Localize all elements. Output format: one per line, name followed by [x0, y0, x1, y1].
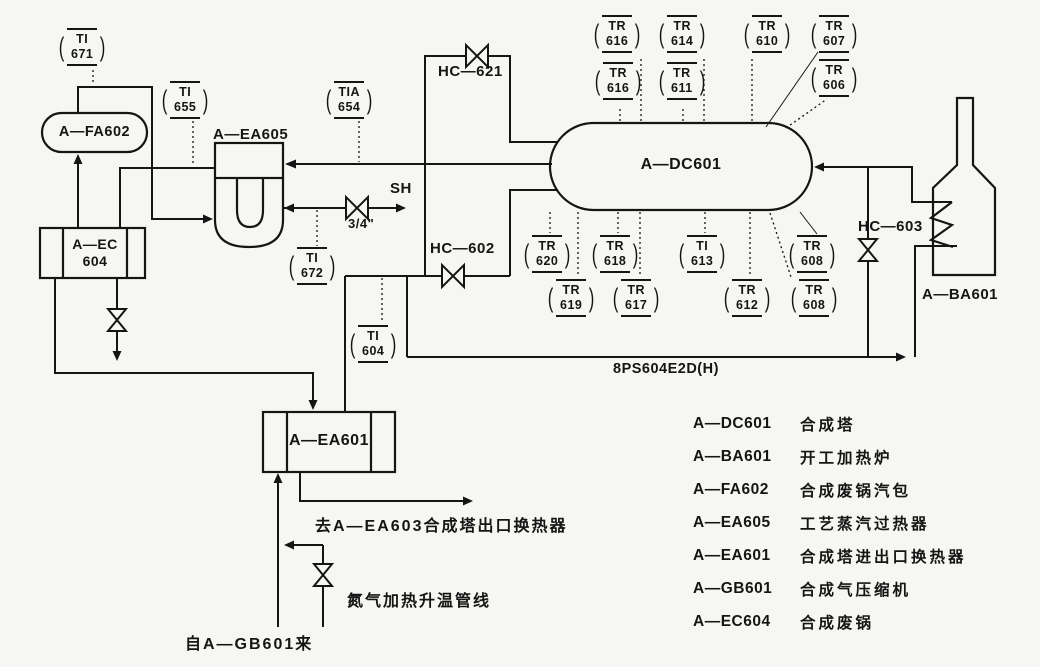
tag-number: 655	[174, 100, 196, 115]
tag-type: TR	[627, 283, 645, 298]
valve-hc603	[859, 239, 877, 261]
arrow-up-to-fa602	[74, 154, 83, 164]
instrument-tag-tr616a: TR616	[592, 15, 642, 53]
pfd-synthesis-unit: TI671 TI655 TIA654 TI672 TI604 TR616 TR6…	[0, 0, 1040, 667]
tag-type: TR	[609, 66, 627, 81]
tag-number: 611	[671, 81, 693, 96]
legend-desc: 合成气压缩机	[800, 578, 911, 600]
arrow-n2-in	[284, 541, 294, 550]
tag-number: 610	[756, 34, 778, 49]
tag-number: 616	[607, 81, 629, 96]
tag-type: TI	[76, 32, 88, 47]
label-dc601: A—DC601	[550, 156, 812, 174]
tag-type: TR	[758, 19, 776, 34]
tag-number: 607	[823, 34, 845, 49]
tag-type: TR	[606, 239, 624, 254]
arrow-drain-down	[113, 351, 122, 361]
label-sh: SH	[390, 180, 412, 197]
note-n2-heating-line: 氮气加热升温管线	[347, 587, 491, 611]
legend-code: A—GB601	[693, 580, 800, 598]
label-valve-hc603: HC—603	[858, 218, 923, 235]
tag-type: TR	[825, 19, 843, 34]
legend-desc: 工艺蒸汽过热器	[800, 512, 930, 534]
arrow-into-dc601-right	[814, 163, 824, 172]
legend-row: A—DC601合成塔	[693, 407, 967, 440]
instrument-tag-tr607: TR607	[809, 15, 859, 53]
instrument-tag-tr606: TR606	[809, 59, 859, 97]
label-ea601: A—EA601	[263, 432, 395, 450]
legend-code: A—DC601	[693, 415, 800, 433]
valve-n2-line	[314, 564, 332, 586]
tag-type: TR	[738, 283, 756, 298]
legend-desc: 合成塔	[800, 413, 856, 435]
tag-number: 613	[691, 254, 713, 269]
instrument-tag-tr608a: TR608	[787, 235, 837, 273]
label-valve-hc602: HC—602	[430, 240, 495, 257]
vessel-ea605-head	[215, 143, 283, 178]
instrument-tag-tr611: TR611	[657, 62, 707, 100]
legend-desc: 合成塔进出口换热器	[800, 545, 967, 567]
legend-desc: 开工加热炉	[800, 446, 893, 468]
note-to-ea603: 去A—EA603合成塔出口换热器	[315, 512, 567, 536]
arrow-into-ea605-shell	[203, 215, 213, 224]
arrow-into-ea601-top	[309, 400, 318, 410]
instrument-tag-tr619: TR619	[546, 279, 596, 317]
instrument-tag-tr610: TR610	[742, 15, 792, 53]
equipment-legend: A—DC601合成塔 A—BA601开工加热炉 A—FA602合成废锅汽包 A—…	[693, 407, 967, 638]
tag-type: TR	[562, 283, 580, 298]
arrow-8ps-end	[896, 353, 906, 362]
label-valve-hc621: HC—621	[438, 63, 503, 80]
legend-code: A—EC604	[693, 613, 800, 631]
tag-type: TR	[673, 19, 691, 34]
instrument-tag-tr614: TR614	[657, 15, 707, 53]
instrument-tag-ti655: TI655	[160, 81, 210, 119]
label-ba601: A—BA601	[922, 286, 998, 303]
instrument-tag-tr620: TR620	[522, 235, 572, 273]
tag-number: 606	[823, 78, 845, 93]
tag-number: 654	[338, 100, 360, 115]
label-ec604-line1: A—EC	[63, 236, 127, 252]
tag-type: TR	[673, 66, 691, 81]
tag-type: TI	[306, 251, 318, 266]
tag-type: TI	[696, 239, 708, 254]
valve-hc602	[442, 265, 464, 287]
tag-number: 671	[71, 47, 93, 62]
tag-number: 620	[536, 254, 558, 269]
instrument-tag-tr618: TR618	[590, 235, 640, 273]
leader-tr608a	[800, 212, 817, 234]
label-ec604-line2: 604	[63, 253, 127, 269]
tag-number: 612	[736, 298, 758, 313]
legend-row: A—EA605工艺蒸汽过热器	[693, 506, 967, 539]
tag-number: 619	[560, 298, 582, 313]
legend-code: A—EA601	[693, 547, 800, 565]
valve-ec604-drain	[108, 309, 126, 331]
vessel-ba601-coil	[931, 202, 953, 247]
instrument-tag-tr608b: TR608	[789, 279, 839, 317]
arrow-from-gb601-up	[274, 473, 283, 483]
legend-code: A—EA605	[693, 514, 800, 532]
instrument-tag-ti604: TI604	[348, 325, 398, 363]
label-fa602: A—FA602	[42, 124, 147, 140]
legend-code: A—BA601	[693, 448, 800, 466]
tag-type: TR	[608, 19, 626, 34]
tag-number: 616	[606, 34, 628, 49]
arrow-to-ea603	[463, 497, 473, 506]
legend-row: A—BA601开工加热炉	[693, 440, 967, 473]
instrument-tag-ti672: TI672	[287, 247, 337, 285]
legend-code: A—FA602	[693, 481, 800, 499]
label-line-8ps604: 8PS604E2D(H)	[613, 361, 719, 377]
instrument-tag-tr616b: TR616	[593, 62, 643, 100]
tag-number: 672	[301, 266, 323, 281]
tag-number: 604	[362, 344, 384, 359]
legend-row: A—GB601合成气压缩机	[693, 572, 967, 605]
tag-type: TI	[367, 329, 379, 344]
instrument-tag-ti671: TI671	[57, 28, 107, 66]
tag-type: TIA	[338, 85, 360, 100]
tag-number: 618	[604, 254, 626, 269]
vessel-ba601-shape	[933, 98, 995, 275]
instrument-tag-tr612: TR612	[722, 279, 772, 317]
instrument-tag-tr617: TR617	[611, 279, 661, 317]
tag-type: TR	[803, 239, 821, 254]
arrow-into-ea605-main	[285, 160, 296, 169]
vessel-ea605-shell	[215, 178, 283, 247]
label-ea605: A—EA605	[213, 126, 288, 143]
tag-number: 608	[801, 254, 823, 269]
tag-number: 614	[671, 34, 693, 49]
legend-row: A—FA602合成废锅汽包	[693, 473, 967, 506]
tag-type: TR	[825, 63, 843, 78]
legend-desc: 合成废锅	[800, 611, 874, 633]
pipe-ea601-to-ea603	[300, 472, 464, 501]
tag-type: TR	[538, 239, 556, 254]
vessel-ea605-utube	[237, 178, 263, 227]
pipe-ec604-to-ea601	[55, 278, 313, 401]
instrument-tag-ti613: TI613	[677, 235, 727, 273]
legend-row: A—EC604合成废锅	[693, 605, 967, 638]
label-valve-size-34: 3/4"	[348, 216, 374, 231]
arrow-sh-in	[284, 204, 294, 213]
legend-desc: 合成废锅汽包	[800, 479, 911, 501]
note-from-gb601: 自A—GB601来	[185, 630, 313, 654]
tag-number: 617	[625, 298, 647, 313]
instrument-tag-tia654: TIA654	[324, 81, 374, 119]
arrow-sh-out	[396, 204, 406, 213]
tag-type: TI	[179, 85, 191, 100]
legend-row: A—EA601合成塔进出口换热器	[693, 539, 967, 572]
tag-type: TR	[805, 283, 823, 298]
tag-number: 608	[803, 298, 825, 313]
